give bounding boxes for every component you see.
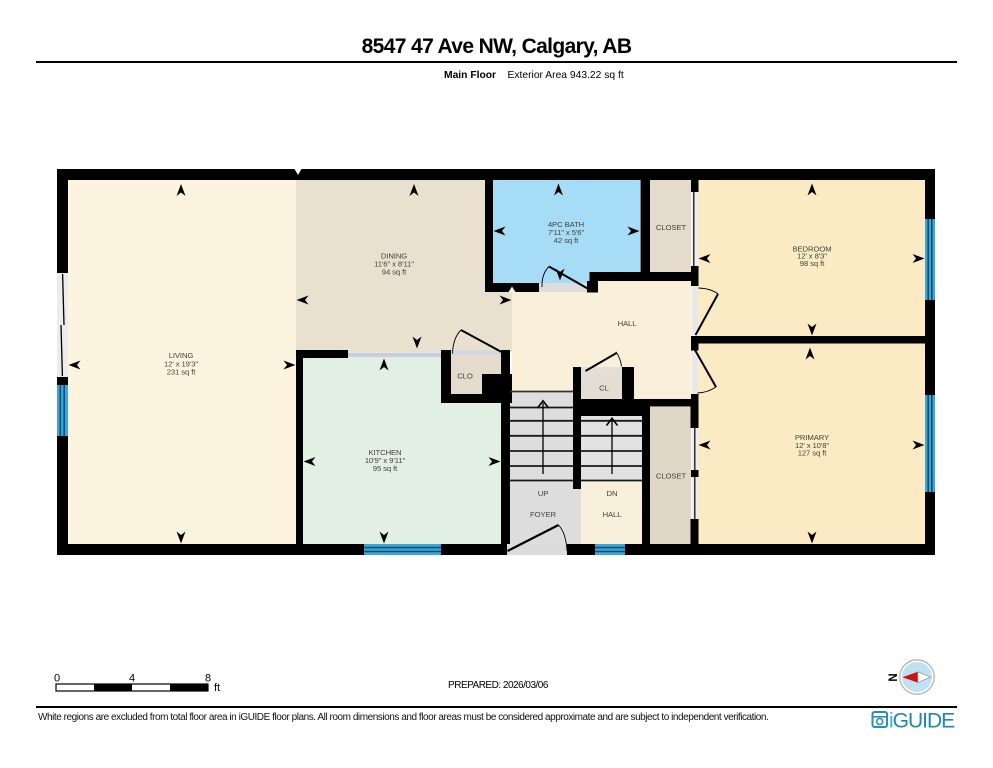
svg-text:N: N — [888, 673, 900, 681]
svg-text:DN: DN — [607, 489, 618, 498]
svg-text:95 sq ft: 95 sq ft — [373, 464, 398, 473]
svg-text:HALL: HALL — [603, 510, 623, 519]
svg-text:42 sq ft: 42 sq ft — [554, 236, 579, 245]
svg-text:CLOSET: CLOSET — [656, 223, 687, 232]
svg-text:UP: UP — [538, 489, 548, 498]
svg-text:CLOSET: CLOSET — [656, 472, 687, 481]
svg-text:4: 4 — [129, 673, 135, 685]
svg-text:127 sq ft: 127 sq ft — [798, 449, 828, 458]
svg-text:HALL: HALL — [618, 319, 638, 328]
svg-text:231 sq ft: 231 sq ft — [167, 368, 197, 377]
svg-text:0: 0 — [54, 673, 60, 685]
svg-text:PREPARED: 2026/03/06: PREPARED: 2026/03/06 — [448, 680, 549, 691]
svg-text:8: 8 — [205, 673, 211, 685]
svg-text:98 sq ft: 98 sq ft — [800, 259, 825, 268]
svg-text:ft: ft — [214, 682, 220, 694]
svg-text:FOYER: FOYER — [530, 510, 557, 519]
svg-text:CL: CL — [599, 384, 609, 393]
svg-text:CLO: CLO — [457, 372, 473, 381]
svg-text:94 sq ft: 94 sq ft — [382, 268, 407, 277]
svg-text:iGUIDE: iGUIDE — [889, 710, 955, 733]
